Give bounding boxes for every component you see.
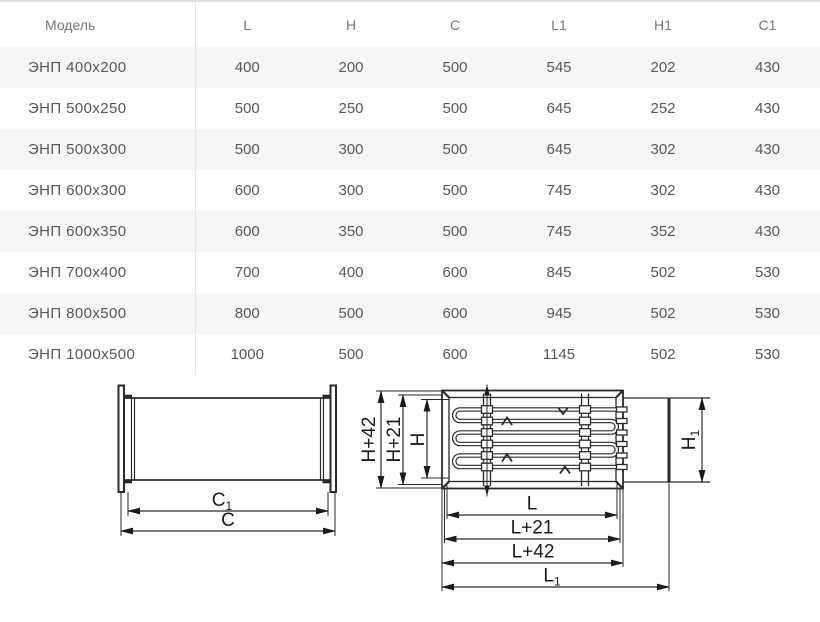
- header-h: H: [299, 1, 403, 47]
- airflow-marks: [502, 408, 570, 474]
- header-c1: C1: [715, 1, 820, 47]
- model-cell: ЭНП 500x300: [0, 129, 195, 170]
- value-cell: 800: [195, 293, 299, 334]
- value-cell: 430: [715, 129, 820, 170]
- value-cell: 500: [403, 47, 507, 88]
- value-cell: 302: [611, 129, 715, 170]
- element-terminals: [617, 407, 628, 470]
- table-row: ЭНП 800x500 800 500 600 945 502 530: [0, 293, 820, 334]
- support-bracket-right: [580, 394, 591, 487]
- technical-drawings: C1 C: [0, 360, 820, 622]
- dim-label-l42: L+42: [512, 542, 555, 563]
- value-cell: 430: [715, 47, 820, 88]
- value-cell: 502: [611, 252, 715, 293]
- value-cell: 745: [507, 211, 611, 252]
- value-cell: 202: [611, 47, 715, 88]
- table-row: ЭНП 700x400 700 400 600 845 502 530: [0, 252, 820, 293]
- value-cell: 845: [507, 252, 611, 293]
- value-cell: 500: [403, 88, 507, 129]
- header-h1: H1: [611, 1, 715, 47]
- frame-outer: [442, 391, 623, 489]
- value-cell: 700: [195, 252, 299, 293]
- value-cell: 400: [195, 47, 299, 88]
- header-c: C: [403, 1, 507, 47]
- table-header-row: Модель L H C L1 H1 C1: [0, 1, 820, 47]
- value-cell: 252: [611, 88, 715, 129]
- spec-sheet: { "table": { "header": { "model": "Модел…: [0, 0, 820, 622]
- value-cell: 945: [507, 293, 611, 334]
- value-cell: 500: [195, 129, 299, 170]
- dim-label-l: L: [527, 494, 538, 515]
- value-cell: 530: [715, 252, 820, 293]
- value-cell: 545: [507, 47, 611, 88]
- value-cell: 430: [715, 170, 820, 211]
- value-cell: 302: [611, 170, 715, 211]
- value-cell: 250: [299, 88, 403, 129]
- value-cell: 600: [195, 170, 299, 211]
- value-cell: 600: [403, 293, 507, 334]
- dim-label-l1: L1: [543, 566, 561, 589]
- dim-label-h1: H1: [679, 429, 702, 450]
- flange-left: [119, 386, 125, 493]
- corner-miters: [442, 391, 623, 489]
- value-cell: 430: [715, 88, 820, 129]
- model-cell: ЭНП 500x250: [0, 88, 195, 129]
- value-cell: 430: [715, 211, 820, 252]
- duct-body: [124, 398, 331, 480]
- heating-element-coil: [454, 410, 621, 468]
- value-cell: 500: [403, 211, 507, 252]
- model-cell: ЭНП 400x200: [0, 47, 195, 88]
- value-cell: 600: [195, 211, 299, 252]
- dimensions-table: Модель L H C L1 H1 C1 ЭНП 400x200 400 20…: [0, 0, 820, 375]
- dim-label-h21: H+21: [384, 417, 405, 463]
- header-l1: L1: [507, 1, 611, 47]
- header-model: Модель: [0, 1, 195, 47]
- model-cell: ЭНП 700x400: [0, 252, 195, 293]
- value-cell: 645: [507, 129, 611, 170]
- dim-label-l21: L+21: [511, 518, 554, 539]
- value-cell: 200: [299, 47, 403, 88]
- value-cell: 502: [611, 293, 715, 334]
- value-cell: 300: [299, 170, 403, 211]
- table-row: ЭНП 600x350 600 350 500 745 352 430: [0, 211, 820, 252]
- value-cell: 500: [195, 88, 299, 129]
- value-cell: 350: [299, 211, 403, 252]
- model-cell: ЭНП 600x300: [0, 170, 195, 211]
- dim-label-c: C: [221, 510, 235, 531]
- flange-right: [331, 386, 337, 493]
- value-cell: 500: [299, 293, 403, 334]
- table-row: ЭНП 400x200 400 200 500 545 202 430: [0, 47, 820, 88]
- table-row: ЭНП 600x300 600 300 500 745 302 430: [0, 170, 820, 211]
- value-cell: 500: [403, 170, 507, 211]
- value-cell: 745: [507, 170, 611, 211]
- value-cell: 400: [299, 252, 403, 293]
- table-row: ЭНП 500x300 500 300 500 645 302 430: [0, 129, 820, 170]
- terminal-box: [623, 398, 710, 591]
- value-cell: 352: [611, 211, 715, 252]
- header-l: L: [195, 1, 299, 47]
- model-cell: ЭНП 800x500: [0, 293, 195, 334]
- value-cell: 645: [507, 88, 611, 129]
- value-cell: 500: [403, 129, 507, 170]
- dim-label-h: H: [408, 433, 429, 447]
- dim-label-h42: H+42: [359, 417, 380, 463]
- table-row: ЭНП 500x250 500 250 500 645 252 430: [0, 88, 820, 129]
- value-cell: 300: [299, 129, 403, 170]
- model-cell: ЭНП 600x350: [0, 211, 195, 252]
- value-cell: 530: [715, 293, 820, 334]
- value-cell: 600: [403, 252, 507, 293]
